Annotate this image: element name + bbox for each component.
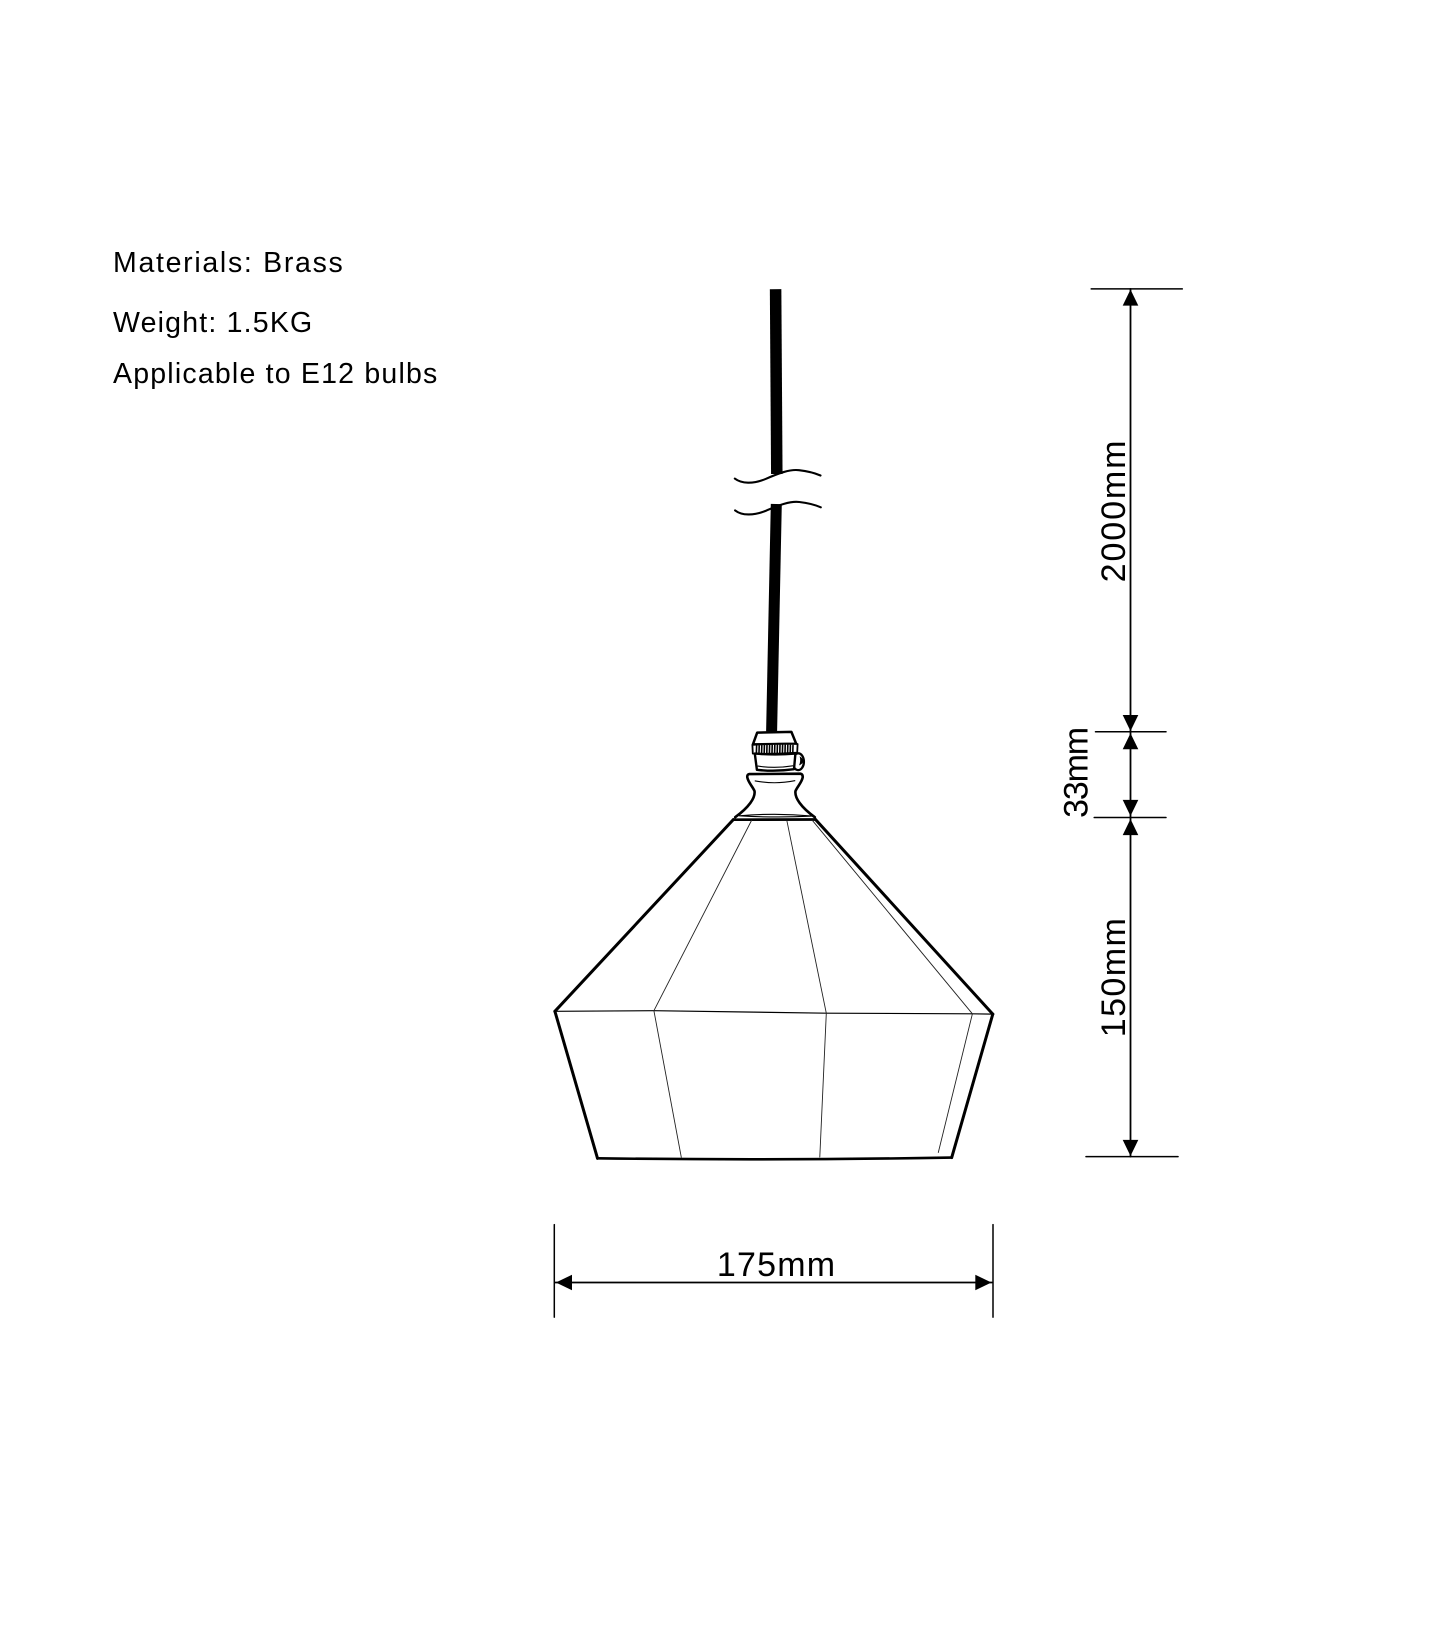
svg-text:150mm: 150mm [1095, 917, 1133, 1037]
svg-text:33mm: 33mm [1058, 728, 1096, 818]
svg-text:175mm: 175mm [717, 1246, 836, 1284]
svg-text:2000mm: 2000mm [1095, 439, 1133, 583]
